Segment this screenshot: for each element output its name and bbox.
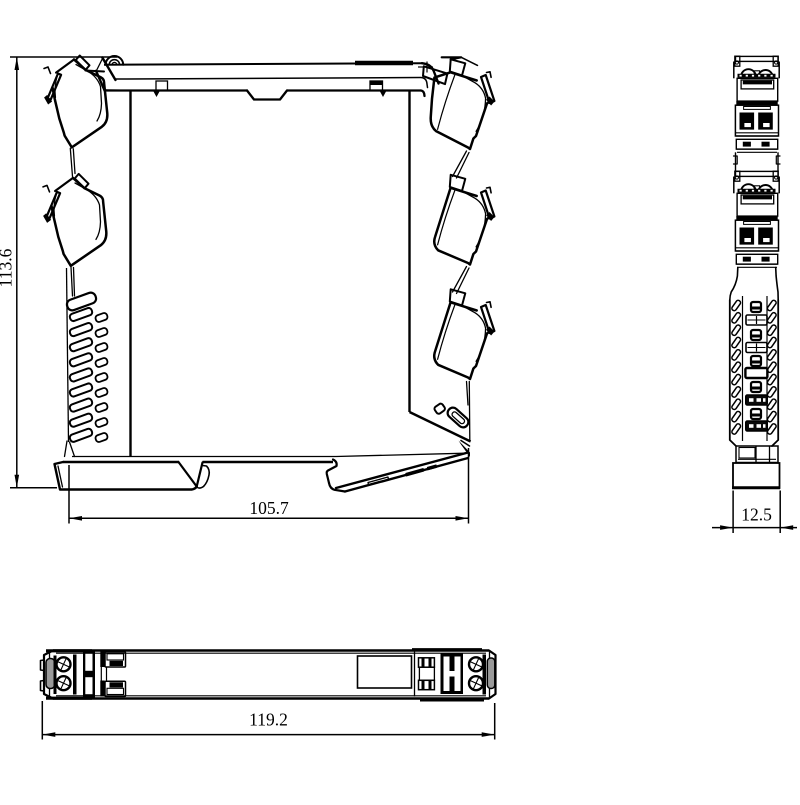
svg-text:105.7: 105.7 <box>249 498 289 518</box>
svg-text:119.2: 119.2 <box>249 710 288 730</box>
svg-text:12.5: 12.5 <box>741 505 772 525</box>
svg-text:113.6: 113.6 <box>0 248 16 287</box>
